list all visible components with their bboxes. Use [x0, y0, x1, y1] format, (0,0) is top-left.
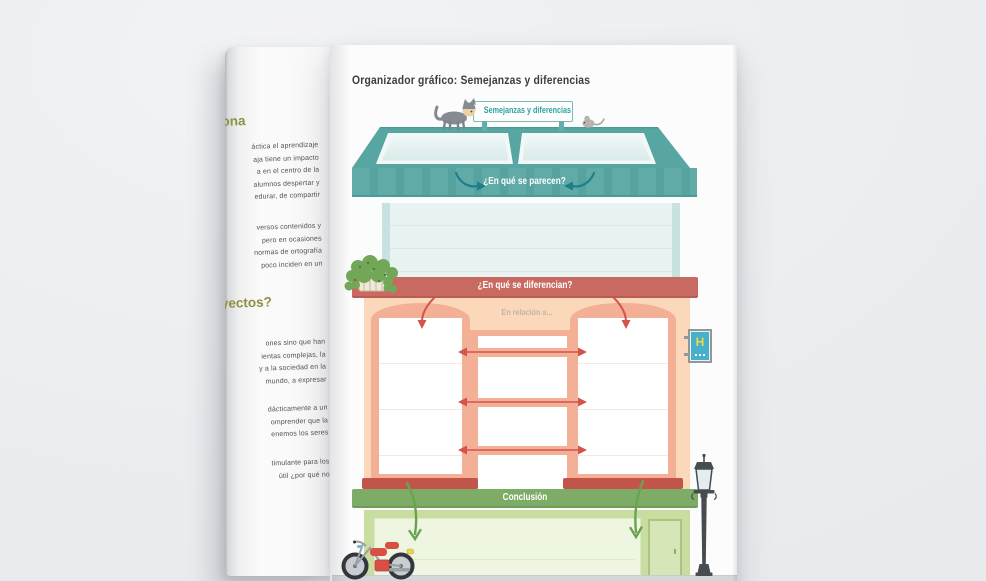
page-title: Organizador gráfico: Semejanzas y difere…	[352, 75, 590, 87]
conclusion-band: Conclusión	[352, 489, 698, 508]
left-page-paragraph: ones sino que hanientas complejas, la y …	[258, 336, 327, 389]
conclusion-label: Conclusión	[383, 489, 667, 506]
difference-writing-right	[578, 318, 668, 474]
left-page-heading-mid: yectos?	[225, 294, 272, 311]
window-mullion	[382, 203, 390, 277]
conclusion-writing-area	[374, 518, 641, 581]
difference-writing-left	[379, 318, 462, 474]
mouse-icon	[583, 116, 605, 128]
hotel-sign-letter: H	[691, 332, 709, 352]
shop-door	[648, 519, 682, 581]
difference-panel-right	[570, 303, 676, 478]
left-page-heading-top: ona	[225, 113, 246, 129]
roof-slope	[352, 127, 690, 168]
similarities-band: ¿En qué se parecen?	[352, 168, 697, 197]
window-mullion	[672, 203, 680, 277]
ladder-rung	[476, 348, 569, 357]
left-page-text: ona áctica el aprendizajeaja tiene un im…	[225, 47, 333, 576]
window-sill-right	[563, 478, 683, 489]
difference-panel-left	[371, 303, 470, 478]
left-page-paragraph: dácticamente a unomprender que la enemos…	[268, 402, 329, 442]
street-lamp-icon	[692, 454, 717, 576]
cat-icon	[436, 98, 476, 129]
shop-sign-label: Semejanzas y diferencias	[484, 102, 562, 119]
sidewalk	[332, 575, 737, 581]
hotel-sign-stars	[695, 354, 697, 356]
similarities-writing-area	[360, 197, 686, 277]
differences-band: ¿En qué se diferencian?	[352, 277, 698, 298]
left-page-paragraph: versos contenidos ypero en ocasiones nor…	[253, 221, 323, 274]
skylight-right	[518, 133, 656, 164]
criteria-ladder	[468, 330, 577, 490]
right-page: Organizador gráfico: Semejanzas y difere…	[330, 45, 737, 581]
hotel-sign-field: H	[691, 332, 709, 360]
window-sill-left	[362, 478, 478, 489]
shop-sign: Semejanzas y diferencias	[473, 101, 573, 122]
left-page: ona áctica el aprendizajeaja tiene un im…	[225, 47, 333, 576]
skylight-left	[376, 133, 513, 164]
similarities-question: ¿En qué se parecen?	[383, 168, 666, 195]
ladder-rung	[476, 398, 569, 407]
desk-background: ona áctica el aprendizajeaja tiene un im…	[0, 0, 986, 581]
differences-question: ¿En qué se diferencian?	[383, 277, 667, 295]
similarities-lined-area	[390, 203, 672, 277]
left-page-paragraph: timulante para losútil ¿por qué no	[271, 456, 330, 483]
ladder-rung	[476, 446, 569, 455]
conclusion-section	[364, 510, 690, 581]
left-page-paragraph: áctica el aprendizajeaja tiene un impact…	[251, 140, 320, 205]
hotel-sign: H	[688, 329, 712, 363]
door-knob	[674, 549, 676, 554]
